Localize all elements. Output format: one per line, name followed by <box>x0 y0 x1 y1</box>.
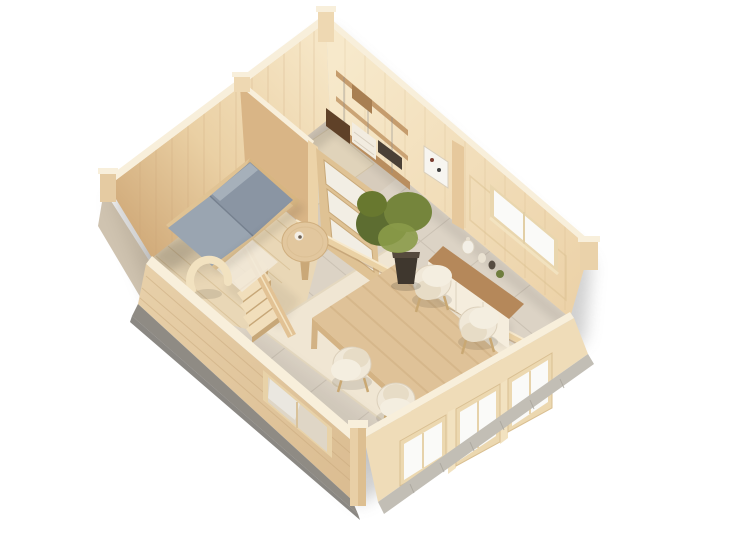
corner-post-east <box>578 236 600 270</box>
succulent <box>496 270 504 278</box>
chair-2 <box>458 307 499 354</box>
corner-post-south <box>348 420 368 506</box>
corner-post-west <box>98 168 118 202</box>
doorway-jamb-post <box>452 140 464 230</box>
chair-3 <box>331 347 372 392</box>
small-jug <box>478 253 486 263</box>
cabin-floorplan-render: Isometric top-down 3D cutaway render of … <box>0 0 750 533</box>
dark-vase <box>489 261 496 270</box>
partition-post <box>232 72 252 92</box>
corner-post-apex <box>316 6 336 42</box>
render-canvas: Isometric top-down 3D cutaway render of … <box>0 0 750 533</box>
lidded-jar <box>462 240 474 254</box>
